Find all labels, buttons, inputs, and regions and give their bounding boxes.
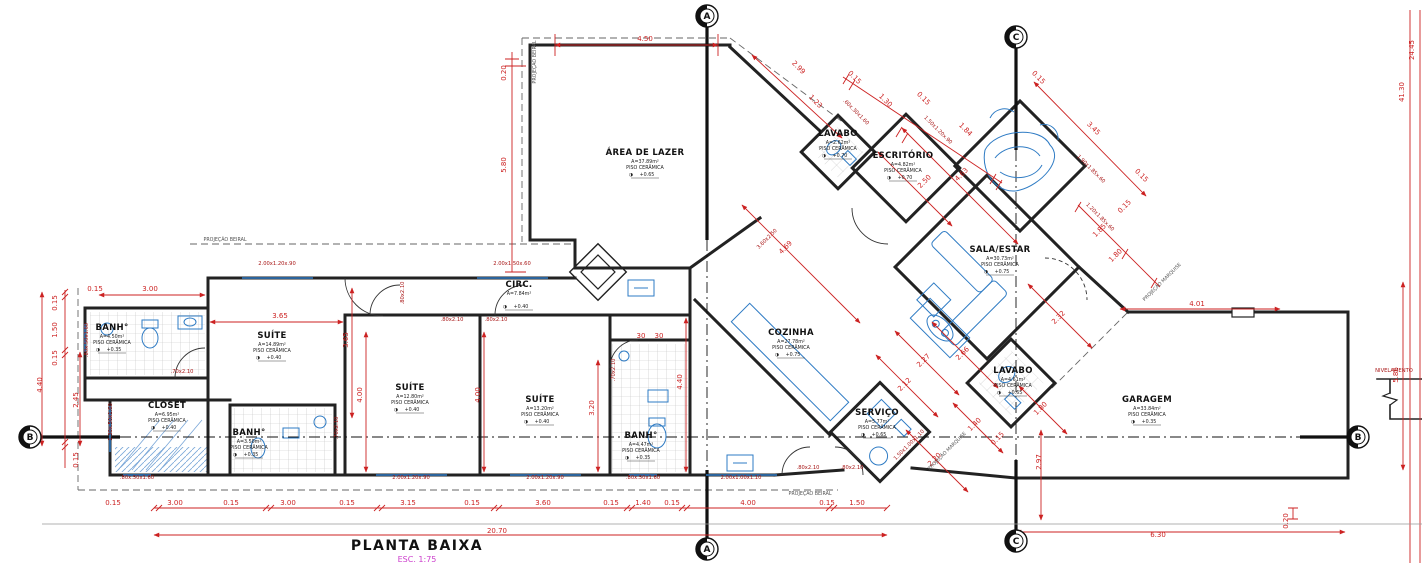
level-symbol-icon: ◑: [887, 176, 891, 181]
dimension-label: 0.15: [223, 499, 239, 507]
room-name: LAVABO: [818, 129, 858, 139]
room-area: A=4.50m²: [100, 334, 125, 340]
dimension-label: 3.00: [142, 285, 158, 293]
room-name: ÁREA DE LAZER: [606, 146, 685, 158]
level-symbol-icon: ◑: [256, 356, 260, 361]
projection-label: PROJEÇÃO BEIRAL: [203, 236, 246, 243]
level-symbol-icon: ◑: [629, 173, 633, 178]
room-level: +0.35: [107, 347, 122, 353]
opening-size-label: 1.30x.50x1.60: [108, 403, 114, 441]
dimension-label: 3.15: [400, 499, 416, 507]
drawing-scale: ESC. 1:75: [398, 555, 437, 564]
room-level: +0.35: [636, 455, 651, 461]
room-floor: PISO CERÂMICA: [858, 424, 896, 431]
room-name: BANH°: [624, 431, 657, 441]
room-level: +0.65: [640, 172, 655, 178]
dimension-label: 4.00: [740, 499, 756, 507]
room-area: A=30.73m²: [986, 256, 1014, 262]
dimension-label: 5.80: [500, 157, 508, 173]
section-marker-letter: B: [1355, 433, 1362, 443]
room-floor: PISO CERÂMICA: [884, 167, 922, 174]
dimension-label: 30: [637, 332, 646, 340]
room-floor: PISO CERÂMICA: [230, 444, 268, 451]
level-symbol-icon: ◑: [775, 353, 779, 358]
room-level: +0.40: [267, 355, 282, 361]
room-name: CIRC.: [506, 280, 533, 290]
projection-label: PROJEÇÃO BEIRAL: [531, 40, 538, 83]
dimension-label: 0.20: [1282, 513, 1290, 529]
opening-size-label: 2.00x1.20x.90: [392, 475, 430, 481]
level-symbol-icon: ◑: [997, 391, 1001, 396]
dimension-label: 3.20: [588, 400, 596, 416]
room-area: A=12.80m²: [396, 394, 424, 400]
room-level: +0.40: [514, 304, 529, 310]
dimension-label: 4.40: [676, 374, 684, 390]
dimension-label: 0.20: [500, 65, 508, 81]
dimension-label: 3.60: [535, 499, 551, 507]
opening-size-label: 2.00x1.50x.60: [493, 261, 531, 267]
opening-size-label: .80x.50x1.60: [84, 323, 90, 357]
room-floor: PISO CERÂMICA: [772, 344, 810, 351]
room-name: SALA/ESTAR: [970, 245, 1031, 255]
level-symbol-icon: ◑: [96, 348, 100, 353]
dimension-label: 24.45: [1408, 40, 1416, 60]
room-name: CLOSET: [148, 401, 186, 411]
room-area: A=2.62m²: [826, 140, 851, 146]
dimension-label: 0.15: [339, 499, 355, 507]
level-symbol-icon: ◑: [503, 305, 507, 310]
room-floor: PISO CERÂMICA: [391, 399, 429, 406]
room-area: A=37.89m²: [631, 159, 659, 165]
opening-size-label: .80x2.10: [841, 465, 864, 471]
dimension-label: 1.50: [51, 322, 59, 338]
opening-size-label: 2.00x1.00x1.10: [721, 475, 762, 481]
opening-size-label: .70x2.10: [611, 359, 617, 382]
room-area: A=3.50m²: [237, 439, 262, 445]
dimension-label: 41.30: [1398, 82, 1406, 102]
dimension-label: 0.15: [464, 499, 480, 507]
room-name: BANH°: [95, 323, 128, 333]
room-name: SUÍTE: [525, 393, 554, 405]
dimension-label: 0.15: [603, 499, 619, 507]
dimension-label: 0.15: [72, 452, 80, 468]
sheet-background: [0, 0, 1422, 573]
opening-size-label: .80x2.10: [797, 465, 820, 471]
room-name: BANH°: [232, 428, 265, 438]
dimension-label: 1.40: [635, 499, 651, 507]
room-level: +0.35: [1142, 419, 1157, 425]
room-area: A=7.84m²: [507, 291, 532, 297]
opening-size-label: .70x2.10: [334, 417, 340, 440]
opening-size-label: .80x2.10: [441, 317, 464, 323]
room-name: COZINHA: [768, 328, 814, 338]
room-level: +0.40: [162, 425, 177, 431]
opening-size-label: .80x.50x1.60: [626, 475, 660, 481]
section-marker-letter: A: [704, 545, 711, 555]
level-symbol-icon: ◑: [394, 408, 398, 413]
room-level: +0.40: [405, 407, 420, 413]
room-area: A=4.61m²: [1001, 377, 1026, 383]
dimension-label: 4.50: [637, 35, 653, 43]
room-name: LAVABO: [993, 366, 1033, 376]
room-name: SUÍTE: [257, 329, 286, 341]
room-area: A=6.95m²: [155, 412, 180, 418]
dimension-label: 3.00: [280, 499, 296, 507]
dimension-label: 0.15: [51, 350, 59, 366]
room-level: +0.35: [244, 452, 259, 458]
opening-size-label: 2.00x1.20x.90: [258, 261, 296, 267]
section-marker-letter: B: [27, 433, 34, 443]
floor-plan-svg: ÁREA DE LAZERA=37.89m²PISO CERÂMICA◑+0.6…: [0, 0, 1422, 573]
drawing-title: PLANTA BAIXA: [351, 538, 483, 554]
dimension-label: 2.97: [1035, 454, 1043, 470]
projection-label: PROJEÇÃO BEIRAL: [788, 490, 831, 497]
dimension-label: 30: [655, 332, 664, 340]
dimension-label: 3.65: [272, 312, 288, 320]
room-name: ESCRITÓRIO: [873, 149, 934, 161]
section-marker-letter: C: [1013, 537, 1020, 547]
opening-size-label: .80x.50x1.60: [120, 475, 154, 481]
room-area: A=27.78m²: [777, 339, 805, 345]
room-floor: PISO CERÂMICA: [994, 382, 1032, 389]
opening-size-label: 2.00x1.20x.90: [526, 475, 564, 481]
dimension-label: 0.15: [664, 499, 680, 507]
dimension-label: 4.00: [356, 387, 364, 403]
room-area: A=14.89m²: [258, 342, 286, 348]
section-marker-letter: A: [704, 12, 711, 22]
dimension-label: 6.30: [1150, 531, 1166, 539]
room-floor: PISO CERÂMICA: [93, 339, 131, 346]
dimension-label: 4.40: [36, 377, 44, 393]
room-name: SUÍTE: [395, 381, 424, 393]
opening-size-label: .80x2.10: [400, 282, 406, 305]
dimension-label: 4.01: [1189, 300, 1205, 308]
dimension-label: 20.70: [487, 527, 507, 535]
level-symbol-icon: ◑: [233, 453, 237, 458]
room-level: +0.75: [786, 352, 801, 358]
room-area: A=5.77m²: [865, 419, 890, 425]
dimension-label: 0.15: [105, 499, 121, 507]
room-floor: PISO CERÂMICA: [253, 347, 291, 354]
opening-size-label: .70x2.10: [171, 369, 194, 375]
level-symbol-icon: ◑: [822, 154, 826, 159]
level-symbol-icon: ◑: [861, 433, 865, 438]
section-marker-letter: C: [1013, 33, 1020, 43]
dimension-label: 0.15: [87, 285, 103, 293]
drawing-sheet: ÁREA DE LAZERA=37.89m²PISO CERÂMICA◑+0.6…: [0, 0, 1422, 573]
level-symbol-icon: ◑: [151, 426, 155, 431]
room-area: A=13.20m²: [526, 406, 554, 412]
room-level: +0.40: [535, 419, 550, 425]
room-level: +0.65: [1008, 390, 1023, 396]
dimension-label: 0.15: [819, 499, 835, 507]
room-name: GARAGEM: [1122, 395, 1172, 405]
dimension-label: 2.45: [72, 392, 80, 408]
level-symbol-icon: ◑: [984, 270, 988, 275]
dimension-label: 3.65: [342, 332, 350, 348]
room-floor: PISO CERÂMICA: [622, 447, 660, 454]
room-area: A=33.84m²: [1133, 406, 1161, 412]
level-symbol-icon: ◑: [1131, 420, 1135, 425]
room-name: SERVIÇO: [855, 408, 899, 418]
room-floor: PISO CERÂMICA: [626, 164, 664, 171]
room-floor: PISO CERÂMICA: [521, 411, 559, 418]
room-floor: PISO CERÂMICA: [1128, 411, 1166, 418]
dimension-label: 3.00: [167, 499, 183, 507]
room-level: +0.65: [872, 432, 887, 438]
level-symbol-icon: ◑: [524, 420, 528, 425]
room-level: +0.75: [995, 269, 1010, 275]
dimension-label: 4.00: [474, 387, 482, 403]
room-floor: PISO CERÂMICA: [819, 145, 857, 152]
opening-size-label: .80x2.10: [485, 317, 508, 323]
dimension-label: 1.50: [849, 499, 865, 507]
dimension-label: 0.15: [51, 295, 59, 311]
room-area: A=4.47m²: [629, 442, 654, 448]
room-level: +0.70: [898, 175, 913, 181]
room-area: A=4.82m²: [891, 162, 916, 168]
room-level: +0.70: [833, 153, 848, 159]
room-floor: PISO CERÂMICA: [148, 417, 186, 424]
room-floor: PISO CERÂMICA: [981, 261, 1019, 268]
opening-size-label: NIVELAMENTO: [1375, 368, 1413, 374]
level-symbol-icon: ◑: [625, 456, 629, 461]
